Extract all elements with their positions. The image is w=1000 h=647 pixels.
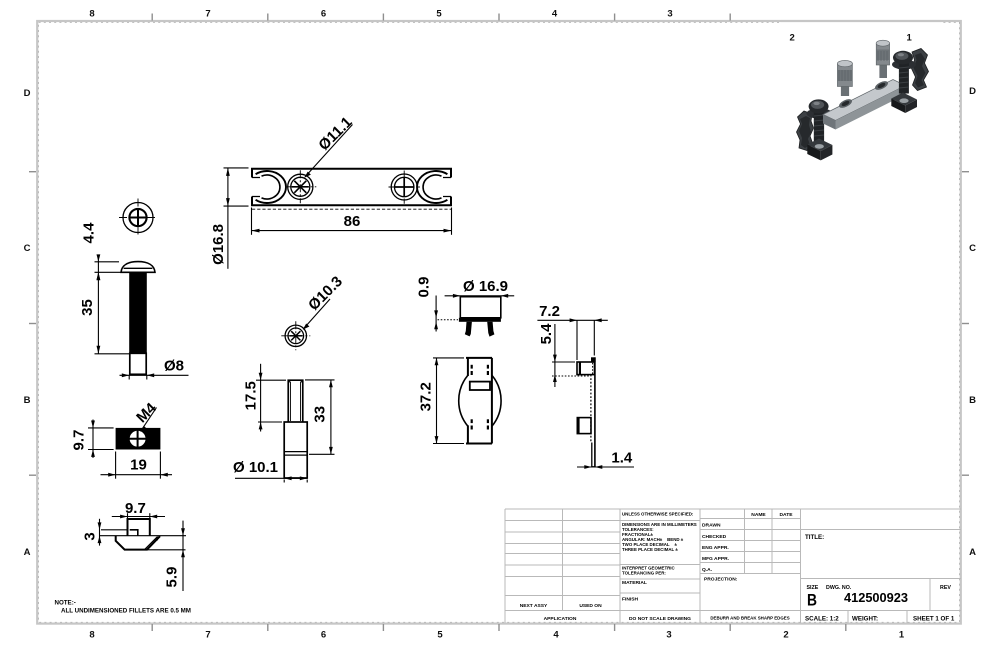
svg-text:4: 4 bbox=[553, 630, 559, 641]
svg-text:B: B bbox=[807, 591, 817, 610]
svg-text:UNLESS OTHERWISE SPECIFIED:: UNLESS OTHERWISE SPECIFIED: bbox=[622, 511, 694, 516]
svg-text:TOLERANCING PER:: TOLERANCING PER: bbox=[622, 571, 666, 576]
svg-text:ENG APPR.: ENG APPR. bbox=[702, 545, 729, 551]
svg-text:1: 1 bbox=[907, 33, 913, 44]
svg-text:2: 2 bbox=[783, 630, 788, 641]
svg-text:WEIGHT:: WEIGHT: bbox=[852, 616, 878, 623]
svg-text:5.9: 5.9 bbox=[164, 567, 181, 588]
svg-text:A: A bbox=[24, 547, 31, 558]
svg-text:9.7: 9.7 bbox=[71, 430, 88, 451]
svg-text:8: 8 bbox=[89, 9, 94, 20]
svg-text:THREE PLACE DECIMAL ±: THREE PLACE DECIMAL ± bbox=[622, 547, 678, 552]
svg-text:Ø 10.1: Ø 10.1 bbox=[233, 459, 278, 476]
svg-text:3: 3 bbox=[666, 630, 671, 641]
svg-text:FINISH: FINISH bbox=[622, 597, 638, 603]
svg-text:8: 8 bbox=[89, 630, 94, 641]
svg-text:SHEET 1 OF 1: SHEET 1 OF 1 bbox=[913, 616, 955, 623]
svg-text:D: D bbox=[24, 88, 31, 99]
svg-text:3: 3 bbox=[667, 9, 672, 20]
svg-text:A: A bbox=[969, 547, 976, 558]
svg-text:USED ON: USED ON bbox=[579, 603, 602, 609]
svg-text:MATERIAL: MATERIAL bbox=[622, 580, 647, 586]
svg-text:DEBURR AND BREAK SHARP EDGES: DEBURR AND BREAK SHARP EDGES bbox=[710, 616, 789, 621]
svg-text:NEXT ASSY: NEXT ASSY bbox=[520, 603, 548, 609]
svg-text:B: B bbox=[969, 395, 976, 406]
svg-text:4: 4 bbox=[552, 9, 558, 20]
svg-text:5.4: 5.4 bbox=[538, 323, 555, 345]
svg-text:412500923: 412500923 bbox=[844, 590, 908, 605]
svg-text:1.4: 1.4 bbox=[611, 450, 633, 467]
svg-text:NAME: NAME bbox=[751, 512, 766, 518]
svg-text:SCALE: 1:2: SCALE: 1:2 bbox=[805, 616, 839, 623]
svg-text:REV: REV bbox=[940, 585, 951, 591]
svg-text:Q.A.: Q.A. bbox=[702, 567, 713, 573]
svg-text:7.2: 7.2 bbox=[539, 303, 560, 320]
svg-text:C: C bbox=[24, 243, 31, 254]
svg-text:C: C bbox=[969, 243, 976, 254]
svg-text:5: 5 bbox=[436, 9, 442, 20]
svg-text:NOTE:-: NOTE:- bbox=[55, 600, 76, 607]
svg-text:19: 19 bbox=[130, 457, 147, 474]
svg-text:6: 6 bbox=[321, 630, 326, 641]
svg-text:3: 3 bbox=[82, 532, 99, 540]
svg-text:37.2: 37.2 bbox=[417, 382, 434, 411]
svg-text:1: 1 bbox=[899, 630, 905, 641]
svg-text:APPLICATION: APPLICATION bbox=[544, 616, 577, 622]
svg-text:ALL UNDIMENSIONED FILLETS ARE: ALL UNDIMENSIONED FILLETS ARE 0.5 MM bbox=[61, 608, 191, 615]
svg-text:4.4: 4.4 bbox=[81, 222, 98, 244]
svg-text:TITLE:: TITLE: bbox=[805, 534, 824, 541]
svg-text:86: 86 bbox=[344, 213, 361, 230]
svg-text:Ø 16.9: Ø 16.9 bbox=[463, 278, 508, 295]
svg-text:7: 7 bbox=[205, 9, 210, 20]
svg-text:Ø8: Ø8 bbox=[164, 357, 184, 374]
svg-text:2: 2 bbox=[790, 33, 795, 44]
svg-text:DRAWN: DRAWN bbox=[702, 523, 721, 529]
svg-text:17.5: 17.5 bbox=[242, 381, 259, 410]
svg-text:DO NOT SCALE DRAWING: DO NOT SCALE DRAWING bbox=[629, 616, 691, 622]
svg-text:PROJECTION:: PROJECTION: bbox=[704, 577, 738, 583]
svg-text:DATE: DATE bbox=[780, 512, 794, 518]
svg-text:9.7: 9.7 bbox=[125, 500, 146, 517]
svg-text:7: 7 bbox=[205, 630, 210, 641]
svg-text:MFG APPR.: MFG APPR. bbox=[702, 556, 730, 562]
svg-text:0.9: 0.9 bbox=[416, 277, 433, 298]
svg-text:Ø16.8: Ø16.8 bbox=[210, 224, 227, 265]
svg-text:6: 6 bbox=[321, 9, 326, 20]
svg-text:CHECKED: CHECKED bbox=[702, 534, 727, 540]
svg-text:B: B bbox=[24, 395, 31, 406]
svg-text:D: D bbox=[969, 86, 976, 97]
svg-text:33: 33 bbox=[312, 406, 329, 423]
svg-text:5: 5 bbox=[437, 630, 443, 641]
svg-text:35: 35 bbox=[79, 299, 96, 316]
